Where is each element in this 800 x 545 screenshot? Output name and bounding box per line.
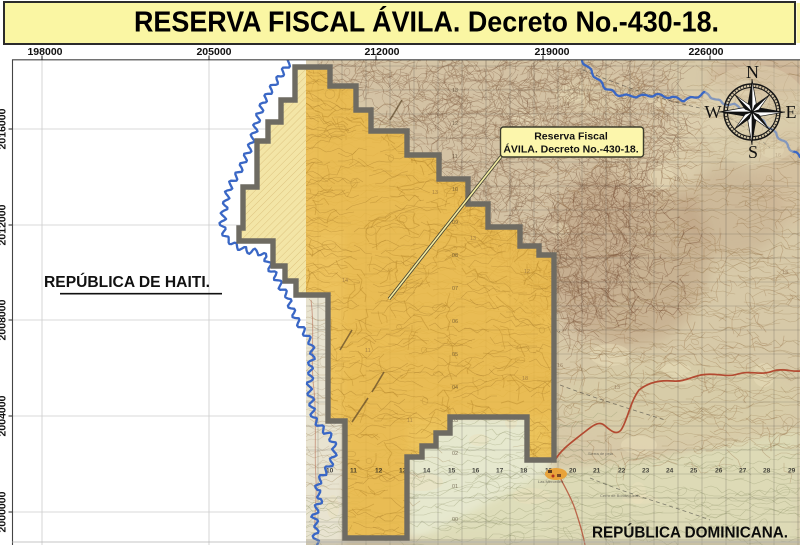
svg-text:Las Mercedes: Las Mercedes [538, 479, 563, 484]
svg-text:09: 09 [452, 220, 458, 226]
svg-text:212000: 212000 [364, 46, 399, 58]
svg-text:13: 13 [432, 190, 438, 196]
svg-text:13: 13 [782, 270, 788, 276]
svg-text:2016000: 2016000 [0, 108, 9, 149]
svg-text:26: 26 [715, 468, 723, 475]
svg-text:13: 13 [452, 88, 458, 94]
svg-text:12: 12 [375, 468, 383, 475]
svg-text:28: 28 [763, 468, 771, 475]
svg-text:23: 23 [642, 468, 650, 475]
svg-text:REPÚBLICA DOMINICANA.: REPÚBLICA DOMINICANA. [592, 524, 788, 542]
svg-text:2000000: 2000000 [0, 491, 9, 532]
svg-text:11: 11 [365, 348, 371, 354]
svg-text:2004000: 2004000 [0, 395, 9, 436]
svg-text:11: 11 [350, 468, 357, 475]
svg-text:14: 14 [423, 468, 431, 475]
svg-text:2008000: 2008000 [0, 299, 9, 340]
svg-text:16: 16 [674, 177, 680, 183]
svg-text:E: E [786, 102, 797, 122]
svg-text:25: 25 [690, 468, 698, 475]
svg-text:08: 08 [452, 253, 458, 259]
svg-text:13: 13 [614, 385, 620, 391]
svg-text:00: 00 [452, 517, 458, 523]
svg-text:226000: 226000 [688, 46, 723, 58]
svg-text:Sierra de pela: Sierra de pela [588, 451, 614, 456]
svg-text:17: 17 [496, 468, 504, 475]
svg-text:21: 21 [593, 468, 601, 475]
svg-text:11: 11 [407, 418, 413, 424]
svg-text:Cerro de Bondequela: Cerro de Bondequela [600, 493, 639, 498]
svg-text:16: 16 [472, 468, 480, 475]
svg-text:10: 10 [452, 187, 458, 193]
svg-text:01: 01 [452, 484, 458, 490]
svg-text:REPÚBLICA DE HAITI.: REPÚBLICA DE HAITI. [44, 272, 210, 291]
svg-text:15: 15 [448, 468, 456, 475]
svg-text:07: 07 [452, 286, 458, 292]
svg-text:11: 11 [452, 154, 458, 160]
svg-text:05: 05 [452, 352, 458, 358]
svg-text:14: 14 [342, 278, 348, 284]
svg-text:27: 27 [739, 468, 747, 475]
svg-text:24: 24 [666, 468, 674, 475]
svg-text:12: 12 [552, 105, 558, 111]
svg-text:22: 22 [618, 468, 626, 475]
svg-text:02: 02 [452, 451, 458, 457]
svg-text:S: S [748, 142, 758, 162]
svg-text:N: N [746, 62, 759, 82]
svg-text:219000: 219000 [534, 46, 569, 58]
svg-text:12: 12 [524, 269, 530, 275]
svg-text:Reserva Fiscal: Reserva Fiscal [534, 131, 608, 143]
svg-text:16: 16 [557, 363, 563, 369]
svg-text:198000: 198000 [27, 46, 62, 58]
svg-text:12: 12 [452, 121, 458, 127]
svg-text:W: W [705, 102, 722, 122]
svg-text:14: 14 [563, 102, 569, 108]
svg-text:04: 04 [452, 385, 458, 391]
svg-text:2012000: 2012000 [0, 204, 9, 245]
svg-text:20: 20 [569, 468, 577, 475]
svg-text:13: 13 [470, 236, 476, 242]
svg-text:18: 18 [520, 468, 528, 475]
svg-text:ÁVILA. Decreto No.-430-18.: ÁVILA. Decreto No.-430-18. [503, 143, 638, 156]
svg-text:18: 18 [522, 376, 528, 382]
svg-text:29: 29 [788, 468, 796, 475]
svg-text:205000: 205000 [196, 46, 231, 58]
svg-text:RESERVA FISCAL ÁVILA. Decreto: RESERVA FISCAL ÁVILA. Decreto No.-430-18… [134, 7, 719, 39]
svg-text:06: 06 [452, 319, 458, 325]
